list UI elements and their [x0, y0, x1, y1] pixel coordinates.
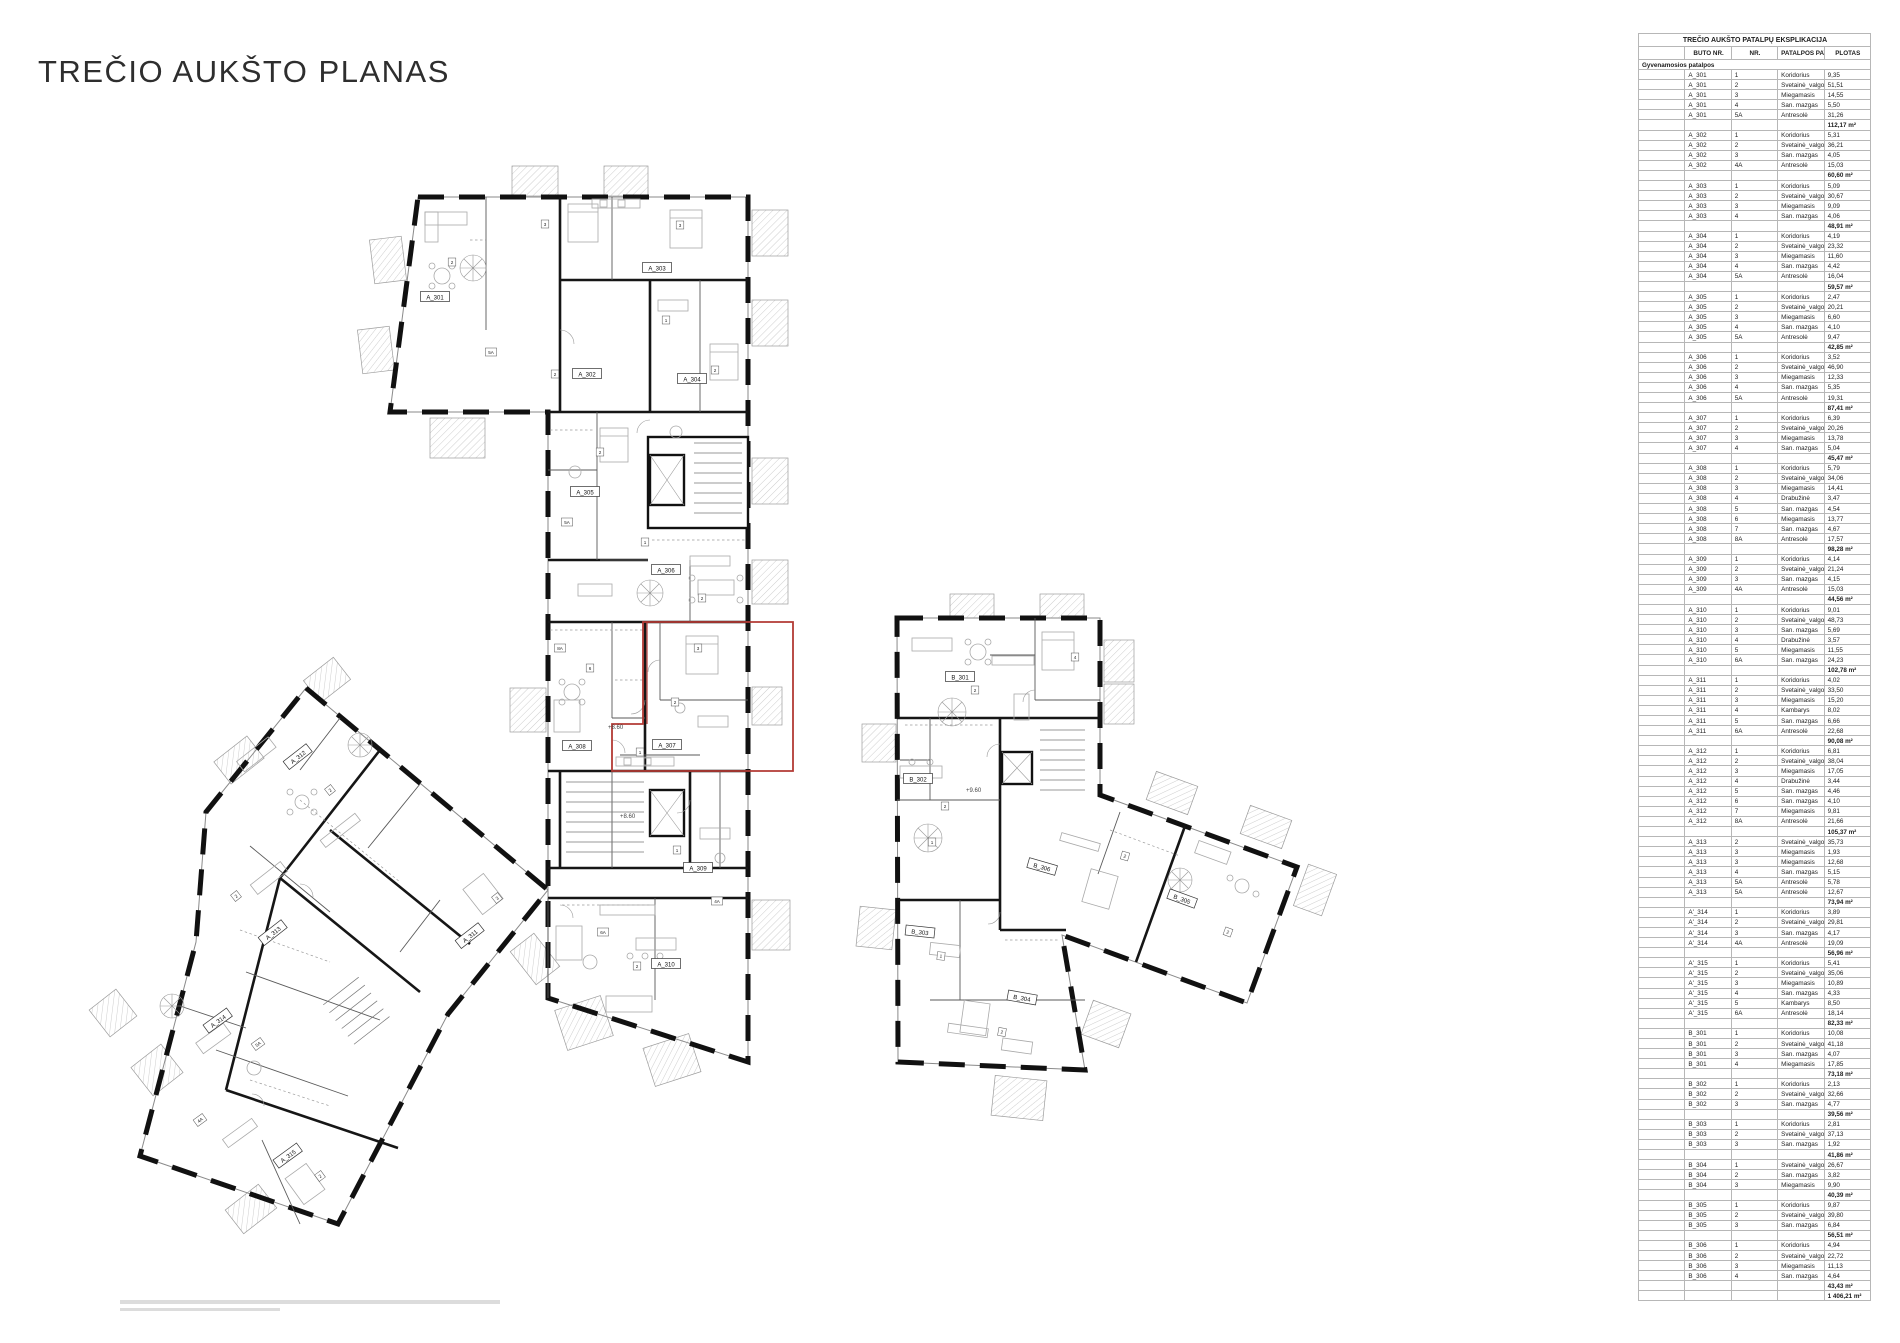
- table-row: A_3055AAntresolė9,47: [1639, 332, 1871, 342]
- table-row: A_3135AAntresolė12,67: [1639, 887, 1871, 897]
- stair-core-a1: [648, 437, 748, 528]
- table-row: A'_3156AAntresolė18,14: [1639, 1008, 1871, 1018]
- scale-bar: [120, 1300, 500, 1311]
- room-number-tag: 5A: [485, 348, 496, 356]
- table-row: A_3088AAntresolė17,57: [1639, 534, 1871, 544]
- svg-text:A_303: A_303: [648, 266, 666, 272]
- table-row: A_3135AAntresolė5,78: [1639, 877, 1871, 887]
- table-row: A_3052Svetainė_valgomasis_virtuvė20,21: [1639, 302, 1871, 312]
- svg-text:A_310: A_310: [657, 962, 675, 968]
- svg-text:2: 2: [451, 260, 454, 265]
- svg-text:B_302: B_302: [909, 777, 927, 783]
- table-row: A_3064San. mazgas5,35: [1639, 382, 1871, 392]
- svg-text:A_309: A_309: [689, 866, 707, 872]
- apartment-total-row: 42,85 m²: [1639, 342, 1871, 352]
- apartment-total-row: 73,94 m²: [1639, 897, 1871, 907]
- table-section: Gyvenamosios patalpos: [1639, 60, 1871, 70]
- room-number-tag: 6A: [597, 928, 608, 936]
- room-number-tag: 2: [315, 1171, 326, 1182]
- table-row: A'_3155Kambarys8,50: [1639, 998, 1871, 1008]
- table-row: B_3022Svetainė_valgomasis_virtuvė32,66: [1639, 1089, 1871, 1099]
- table-row: B_3053San. mazgas6,84: [1639, 1220, 1871, 1230]
- table-row: A'_3143San. mazgas4,17: [1639, 927, 1871, 937]
- svg-text:2: 2: [599, 450, 602, 455]
- room-number-tag: 2: [1223, 927, 1233, 937]
- svg-text:A_307: A_307: [658, 743, 676, 749]
- table-row: A_3111Koridorius4,02: [1639, 675, 1871, 685]
- room-number-tag: 4: [1071, 653, 1079, 661]
- apartment-total-row: 112,17 m²: [1639, 120, 1871, 130]
- svg-text:4A: 4A: [714, 899, 721, 904]
- elevation-mark: +8.60: [620, 814, 636, 820]
- room-number-tag: 3: [694, 644, 702, 652]
- table-header: BUTO NR.NR.PATALPOS PAVADINIMASPLOTAS: [1639, 47, 1871, 60]
- table-row: A_3122Svetainė_valgomasis_virtuvė38,04: [1639, 756, 1871, 766]
- table-row: A_3063Miegamasis12,33: [1639, 372, 1871, 382]
- table-row: A_3124Drabužinė3,44: [1639, 776, 1871, 786]
- table-row: A_3112Svetainė_valgomasis_virtuvė33,50: [1639, 685, 1871, 695]
- apartment-label: A_306: [652, 565, 681, 575]
- table-row: A_3044San. mazgas4,42: [1639, 261, 1871, 271]
- svg-text:A_305: A_305: [576, 490, 594, 496]
- svg-text:2: 2: [974, 688, 977, 693]
- table-row: A'_3142Svetainė_valgomasis_virtuvė29,81: [1639, 917, 1871, 927]
- apartment-total-row: 41,86 m²: [1639, 1150, 1871, 1160]
- elevation-mark: +8.60: [608, 725, 624, 731]
- table-row: A_3105Miegamasis11,55: [1639, 645, 1871, 655]
- room-number-tag: 3: [492, 893, 503, 904]
- table-row: B_3012Svetainė_valgomasis_virtuvė41,18: [1639, 1039, 1871, 1049]
- table-row: A_3022Svetainė_valgomasis_virtuvė36,21: [1639, 140, 1871, 150]
- room-number-tag: 1: [937, 952, 945, 961]
- spiral-stair-icons: [160, 255, 1192, 1018]
- table-row: B_3063Miegamasis11,13: [1639, 1261, 1871, 1271]
- svg-text:2: 2: [674, 700, 677, 705]
- table-row: A_3113Miegamasis15,20: [1639, 695, 1871, 705]
- apartment-label: A_315: [273, 1143, 302, 1168]
- table-row: A_3091Koridorius4,14: [1639, 554, 1871, 564]
- table-row: A_3062Svetainė_valgomasis_virtuvė46,90: [1639, 362, 1871, 372]
- table-row: A_3074San. mazgas5,04: [1639, 443, 1871, 453]
- building-a-interior-walls: [470, 197, 748, 1000]
- apartment-label: A_302: [573, 369, 602, 379]
- svg-text:3: 3: [697, 646, 700, 651]
- apartment-label: B_302: [904, 774, 933, 784]
- room-number-tag: 2: [671, 698, 679, 706]
- table-row: A_3081Koridorius5,79: [1639, 463, 1871, 473]
- room-number-tag: 2: [941, 802, 949, 810]
- svg-text:A_301: A_301: [426, 295, 444, 301]
- apartment-total-row: 56,51 m²: [1639, 1230, 1871, 1240]
- svg-text:A_304: A_304: [683, 377, 701, 383]
- room-number-tag: 2: [633, 962, 641, 970]
- room-number-tag: 2: [596, 448, 604, 456]
- table-row: A_3073Miegamasis13,78: [1639, 433, 1871, 443]
- table-row: A_3031Koridorius5,09: [1639, 181, 1871, 191]
- svg-text:2: 2: [701, 596, 704, 601]
- table-row: A_3014San. mazgas5,50: [1639, 100, 1871, 110]
- apartment-label: A_313: [258, 920, 287, 946]
- svg-text:B_301: B_301: [951, 675, 969, 681]
- table-row: A_3051Koridorius2,47: [1639, 292, 1871, 302]
- table-row: A_3084Drabužinė3,47: [1639, 493, 1871, 503]
- table-row: A'_3151Koridorius5,41: [1639, 958, 1871, 968]
- table-row: A_3053Miegamasis6,60: [1639, 312, 1871, 322]
- svg-text:3: 3: [544, 222, 547, 227]
- room-number-tag: 5A: [561, 518, 572, 526]
- svg-text:A_308: A_308: [568, 744, 586, 750]
- svg-text:8A: 8A: [557, 646, 564, 651]
- stair-core-b: [1002, 730, 1085, 790]
- apartment-total-row: 60,60 m²: [1639, 170, 1871, 180]
- table-row: A_3011Koridorius9,35: [1639, 70, 1871, 80]
- table-row: A_3045AAntresolė16,04: [1639, 271, 1871, 281]
- apartment-label: B_306: [1027, 858, 1058, 876]
- table-row: A_3023San. mazgas4,05: [1639, 150, 1871, 160]
- room-number-tag: 5A: [251, 1037, 265, 1050]
- table-row: A_3085San. mazgas4,54: [1639, 504, 1871, 514]
- svg-text:5A: 5A: [488, 350, 495, 355]
- apartment-total-row: 102,78 m²: [1639, 665, 1871, 675]
- room-number-tag: 3: [541, 220, 549, 228]
- table-row: A_3065AAntresolė19,31: [1639, 393, 1871, 403]
- apartment-label: A_308: [563, 741, 592, 751]
- apartment-label: B_303: [905, 925, 935, 938]
- svg-text:6: 6: [589, 666, 592, 671]
- apartment-total-row: 105,37 m²: [1639, 827, 1871, 837]
- building-c-outline: [140, 688, 548, 1224]
- table-row: A_3032Svetainė_valgomasis_virtuvė30,67: [1639, 191, 1871, 201]
- svg-text:3: 3: [679, 223, 682, 228]
- table-row: A_3043Miegamasis11,60: [1639, 251, 1871, 261]
- table-row: A_3015AAntresolė31,26: [1639, 110, 1871, 120]
- table-title: TREČIO AUKŠTO PATALPŲ EKSPLIKACIJA: [1639, 34, 1871, 47]
- table-row: A_3034San. mazgas4,06: [1639, 211, 1871, 221]
- room-explication-table: TREČIO AUKŠTO PATALPŲ EKSPLIKACIJABUTO N…: [1638, 33, 1871, 1301]
- apartment-total-row: 82,33 m²: [1639, 1018, 1871, 1028]
- table-row: A_3103San. mazgas5,69: [1639, 625, 1871, 635]
- apartment-total-row: 48,91 m²: [1639, 221, 1871, 231]
- table-row: A_3072Svetainė_valgomasis_virtuvė20,26: [1639, 423, 1871, 433]
- table-row: A_3054San. mazgas4,10: [1639, 322, 1871, 332]
- svg-text:1: 1: [644, 540, 647, 545]
- table-row: A_3041Koridorius4,19: [1639, 231, 1871, 241]
- apartment-label: A_312: [283, 744, 312, 770]
- table-row: B_3023San. mazgas4,77: [1639, 1099, 1871, 1109]
- svg-text:6A: 6A: [600, 930, 607, 935]
- apartment-total-row: 90,08 m²: [1639, 736, 1871, 746]
- table-row: A'_3144AAntresolė19,09: [1639, 938, 1871, 948]
- room-number-tag: 4A: [193, 1113, 207, 1126]
- table-row: A_3086Miegamasis13,77: [1639, 514, 1871, 524]
- apartment-label: B_304: [1007, 990, 1037, 1005]
- room-number-tag: 2: [448, 258, 456, 266]
- table-row: A_3125San. mazgas4,46: [1639, 786, 1871, 796]
- table-row: A_3092Svetainė_valgomasis_virtuvė21,24: [1639, 564, 1871, 574]
- apartment-total-row: 87,41 m²: [1639, 403, 1871, 413]
- apartment-total-row: 45,47 m²: [1639, 453, 1871, 463]
- svg-text:1: 1: [639, 750, 642, 755]
- table-row: A_3013Miegamasis14,55: [1639, 90, 1871, 100]
- table-row: A_3101Koridorius9,01: [1639, 604, 1871, 614]
- svg-text:1: 1: [931, 840, 934, 845]
- table-row: B_3061Koridorius4,94: [1639, 1240, 1871, 1250]
- apartment-total-row: 73,18 m²: [1639, 1069, 1871, 1079]
- table-row: B_3021Koridorius2,13: [1639, 1079, 1871, 1089]
- table-row: A_3033Miegamasis9,09: [1639, 201, 1871, 211]
- table-row: A_3061Koridorius3,52: [1639, 352, 1871, 362]
- svg-text:A_302: A_302: [578, 372, 596, 378]
- table-row: B_3062Svetainė_valgomasis_virtuvė22,72: [1639, 1250, 1871, 1260]
- table-row: A_3126San. mazgas4,10: [1639, 796, 1871, 806]
- table-row: A_3102Svetainė_valgomasis_virtuvė48,73: [1639, 615, 1871, 625]
- svg-text:2: 2: [636, 964, 639, 969]
- room-number-tag: 4A: [711, 897, 722, 905]
- floor-plan-drawing: A_301A_302A_303A_304A_305A_306A_307A_308…: [0, 0, 1900, 1343]
- room-number-tag: 2: [1120, 851, 1130, 861]
- table-row: A_3114Kambarys8,02: [1639, 705, 1871, 715]
- drawing-sheet: TREČIO AUKŠTO PLANAS: [0, 0, 1900, 1343]
- table-row: A_3083Miegamasis14,41: [1639, 483, 1871, 493]
- table-row: B_3043Miegamasis9,90: [1639, 1180, 1871, 1190]
- room-number-tag: 3: [676, 221, 684, 229]
- svg-text:2: 2: [944, 804, 947, 809]
- apartment-label: A_303: [643, 263, 672, 273]
- table-row: A_3024AAntresolė15,03: [1639, 160, 1871, 170]
- table-row: A_3012Svetainė_valgomasis_virtuvė51,51: [1639, 80, 1871, 90]
- svg-text:2: 2: [554, 372, 557, 377]
- apartment-label: A_307: [653, 740, 682, 750]
- apartment-label: A_305: [571, 487, 600, 497]
- apartment-total-row: 40,39 m²: [1639, 1190, 1871, 1200]
- building-a-outline: [390, 197, 748, 1062]
- table-row: A'_3141Koridorius3,89: [1639, 907, 1871, 917]
- apartment-total-row: 39,56 m²: [1639, 1109, 1871, 1119]
- table-row: B_3051Koridorius9,87: [1639, 1200, 1871, 1210]
- table-row: B_3014Miegamasis17,85: [1639, 1059, 1871, 1069]
- table-row: A_3021Koridorius5,31: [1639, 130, 1871, 140]
- room-number-tag: 2: [998, 1027, 1007, 1036]
- room-number-tag: 1: [636, 748, 644, 756]
- svg-text:1: 1: [665, 318, 668, 323]
- apartment-total-row: 56,96 m²: [1639, 948, 1871, 958]
- apartment-total-row: 44,56 m²: [1639, 594, 1871, 604]
- table-row: A'_3152Svetainė_valgomasis_virtuvė35,06: [1639, 968, 1871, 978]
- table-row: B_3031Koridorius2,81: [1639, 1119, 1871, 1129]
- table-row: A_3042Svetainė_valgomasis_virtuvė23,32: [1639, 241, 1871, 251]
- grand-total-row: 1 406,21 m²: [1639, 1291, 1871, 1301]
- apartment-label: B_301: [946, 672, 975, 682]
- room-number-tag: 2: [231, 891, 242, 902]
- room-number-tag: 2: [325, 785, 336, 796]
- room-number-tag: 2: [698, 594, 706, 602]
- table-row: B_3032Svetainė_valgomasis_virtuvė37,13: [1639, 1129, 1871, 1139]
- table-row: A_3071Koridorius6,39: [1639, 413, 1871, 423]
- table-row: A_3133Miegamasis1,93: [1639, 847, 1871, 857]
- table-row: B_3064San. mazgas4,64: [1639, 1271, 1871, 1281]
- room-number-tag: 1: [641, 538, 649, 546]
- apartment-label: A_304: [678, 374, 707, 384]
- table-row: A_3093San. mazgas4,15: [1639, 574, 1871, 584]
- table-row: B_3013San. mazgas4,07: [1639, 1049, 1871, 1059]
- table-row: A_3106ASan. mazgas24,23: [1639, 655, 1871, 665]
- room-number-tag: 2: [711, 366, 719, 374]
- apartment-total-row: 43,43 m²: [1639, 1281, 1871, 1291]
- table-row: B_3033San. mazgas1,92: [1639, 1139, 1871, 1149]
- apartment-label: A_309: [684, 863, 713, 873]
- apartment-total-row: 59,57 m²: [1639, 281, 1871, 291]
- apartment-total-row: 98,28 m²: [1639, 544, 1871, 554]
- table-row: A_3127Miegamasis9,81: [1639, 806, 1871, 816]
- apartment-label: A_310: [652, 959, 681, 969]
- table-row: B_3041Svetainė_valgomasis_virtuvė26,67: [1639, 1160, 1871, 1170]
- table-row: A_3116AAntresolė22,68: [1639, 726, 1871, 736]
- svg-text:5A: 5A: [564, 520, 571, 525]
- room-number-tag: 1: [928, 838, 936, 846]
- svg-text:1: 1: [676, 848, 679, 853]
- stair-core-c: [323, 977, 389, 1044]
- table-row: A'_3154San. mazgas4,33: [1639, 988, 1871, 998]
- table-row: A_3082Svetainė_valgomasis_virtuvė34,06: [1639, 473, 1871, 483]
- table-row: A_3134San. mazgas5,15: [1639, 867, 1871, 877]
- room-number-tag: 2: [971, 686, 979, 694]
- table-row: A_3115San. mazgas6,66: [1639, 716, 1871, 726]
- table-row: A_3128AAntresolė21,66: [1639, 816, 1871, 826]
- elevation-mark: +9.60: [966, 788, 982, 794]
- table-row: A'_3153Miegamasis10,89: [1639, 978, 1871, 988]
- apartment-label: A_301: [421, 292, 450, 302]
- table-row: A_3123Miegamasis17,05: [1639, 766, 1871, 776]
- table-row: A_3121Koridorius6,81: [1639, 746, 1871, 756]
- table-row: A_3132Svetainė_valgomasis_virtuvė35,73: [1639, 837, 1871, 847]
- building-c-interior-walls: [180, 718, 470, 1224]
- svg-text:A_306: A_306: [657, 568, 675, 574]
- table-row: A_3087San. mazgas4,67: [1639, 524, 1871, 534]
- table-row: B_3042San. mazgas3,82: [1639, 1170, 1871, 1180]
- room-number-tag: 6: [586, 664, 594, 672]
- svg-text:2: 2: [714, 368, 717, 373]
- room-number-tag: 2: [551, 370, 559, 378]
- room-number-tag: 1: [673, 846, 681, 854]
- svg-text:4: 4: [1074, 655, 1077, 660]
- room-number-tag: 8A: [554, 644, 565, 652]
- table-row: B_3052Svetainė_valgomasis_virtuvė39,80: [1639, 1210, 1871, 1220]
- table-row: A_3104Drabužinė3,57: [1639, 635, 1871, 645]
- table-row: B_3011Koridorius10,08: [1639, 1028, 1871, 1038]
- room-number-tag: 1: [662, 316, 670, 324]
- table-row: A_3094AAntresolė15,03: [1639, 584, 1871, 594]
- table-row: A_3133Miegamasis12,68: [1639, 857, 1871, 867]
